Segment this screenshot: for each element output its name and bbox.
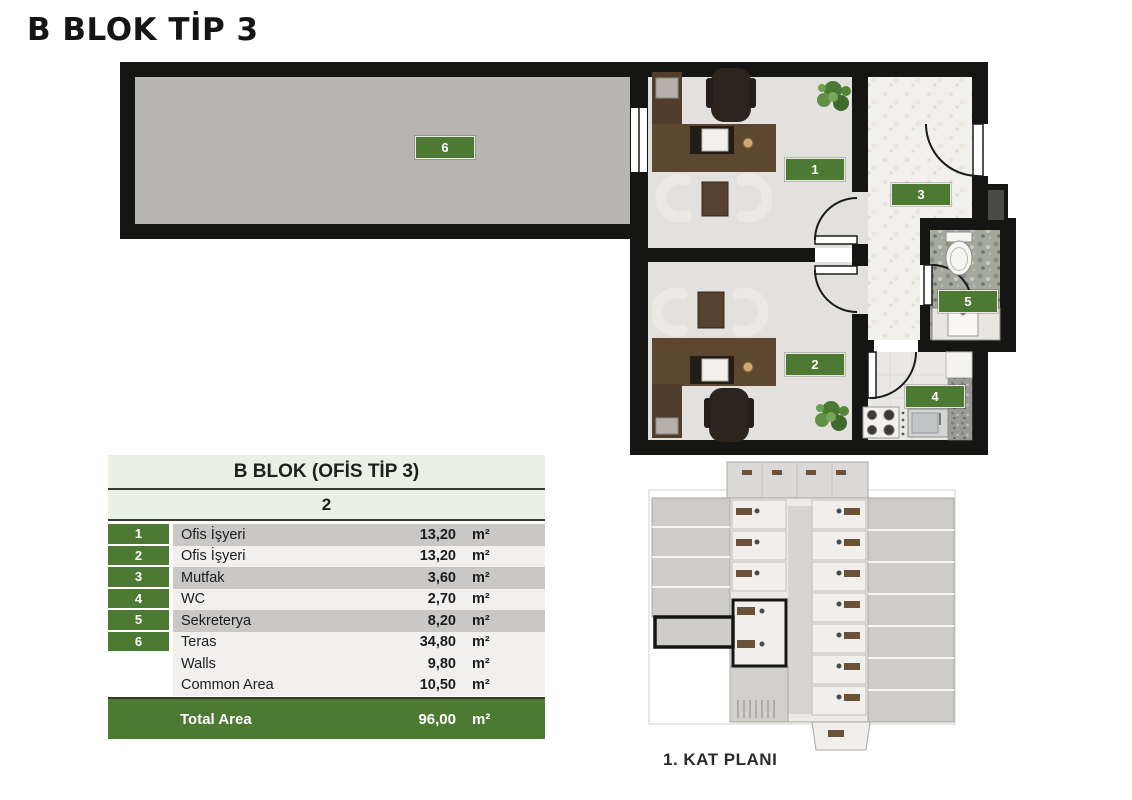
row-label: Mutfak [173, 570, 396, 586]
room-badge-3-label: 3 [917, 187, 924, 202]
row-number: 4 [108, 589, 169, 609]
row-unit: m² [472, 548, 502, 564]
mini-core-stairs [730, 666, 788, 722]
table-row: 2 Ofis İşyeri13,20m² [108, 546, 545, 568]
mini-bottom-unit [812, 722, 870, 750]
terrace-window [631, 108, 647, 172]
toilet [946, 241, 972, 275]
table-subtitle: 2 [108, 490, 545, 521]
printer [656, 78, 678, 98]
room-badge-5-label: 5 [964, 294, 971, 309]
page: B BLOK TİP 3 [0, 0, 1132, 800]
total-unit: m² [472, 711, 502, 728]
table-row: Common Area10,50m² [108, 675, 545, 697]
row-number: 3 [108, 567, 169, 587]
table-row: Walls9,80m² [108, 653, 545, 675]
row-unit: m² [472, 656, 502, 672]
area-table: B BLOK (OFİS TİP 3) 2 1 Ofis İşyeri13,20… [108, 455, 545, 739]
row-number: 6 [108, 632, 169, 652]
room-badge-1: 1 [785, 158, 845, 181]
row-value: 2,70 [396, 591, 456, 607]
cabinet [656, 418, 678, 434]
row-label: Sekreterya [173, 613, 396, 629]
cup [743, 138, 753, 148]
counter-white [946, 352, 972, 378]
row-label: Ofis İşyeri [173, 548, 396, 564]
office-chair [711, 68, 751, 122]
row-number [108, 653, 169, 673]
row-value: 34,80 [396, 634, 456, 650]
table-total-row: Total Area 96,00 m² [108, 697, 545, 739]
coffee-table [698, 292, 724, 328]
sink-basin [948, 312, 978, 336]
row-label: Walls [173, 656, 396, 672]
row-value: 3,60 [396, 570, 456, 586]
table-title: B BLOK (OFİS TİP 3) [108, 455, 545, 490]
total-label: Total Area [108, 711, 396, 728]
table-rows: 1 Ofis İşyeri13,20m² 2 Ofis İşyeri13,20m… [108, 524, 545, 696]
right-wing-terraces [868, 498, 954, 722]
room-badge-2-label: 2 [811, 357, 818, 372]
mini-plan-caption: 1. KAT PLANI [663, 750, 777, 770]
row-value: 8,20 [396, 613, 456, 629]
row-unit: m² [472, 591, 502, 607]
room-badge-1-label: 1 [811, 162, 818, 177]
mini-offices-left [732, 500, 786, 591]
table-row: 6 Teras34,80m² [108, 632, 545, 654]
room-badge-5: 5 [938, 290, 998, 313]
room-badge-6-label: 6 [441, 140, 448, 155]
room-badge-3: 3 [891, 183, 951, 206]
row-label: Teras [173, 634, 396, 650]
coffee-table [702, 182, 728, 216]
room-badge-4-label: 4 [931, 389, 938, 404]
row-number: 1 [108, 524, 169, 544]
laptop [702, 129, 728, 151]
main-unit-plan [120, 62, 1016, 455]
row-unit: m² [472, 677, 502, 693]
room-badge-6: 6 [415, 136, 475, 159]
hall-floor-lower [868, 218, 920, 340]
terrace-floor [135, 77, 630, 224]
utility-shaft [984, 184, 1008, 226]
mini-floorplan [649, 462, 955, 750]
row-unit: m² [472, 634, 502, 650]
table-row: 1 Ofis İşyeri13,20m² [108, 524, 545, 546]
row-number [108, 675, 169, 695]
row-number: 2 [108, 546, 169, 566]
row-unit: m² [472, 613, 502, 629]
laptop [702, 359, 728, 381]
mini-offices-right [812, 500, 866, 715]
row-unit: m² [472, 570, 502, 586]
total-value: 96,00 [396, 711, 456, 728]
row-unit: m² [472, 527, 502, 543]
cup [743, 362, 753, 372]
row-value: 9,80 [396, 656, 456, 672]
room-badge-4: 4 [905, 385, 965, 408]
table-row: 3 Mutfak3,60m² [108, 567, 545, 589]
row-value: 13,20 [396, 527, 456, 543]
row-value: 13,20 [396, 548, 456, 564]
row-label: Ofis İşyeri [173, 527, 396, 543]
corridor [788, 506, 812, 714]
row-number: 5 [108, 610, 169, 630]
office-chair [709, 388, 749, 442]
room-badge-2: 2 [785, 353, 845, 376]
row-value: 10,50 [396, 677, 456, 693]
table-row: 4 WC2,70m² [108, 589, 545, 611]
table-row: 5 Sekreterya8,20m² [108, 610, 545, 632]
row-label: WC [173, 591, 396, 607]
row-label: Common Area [173, 677, 396, 693]
